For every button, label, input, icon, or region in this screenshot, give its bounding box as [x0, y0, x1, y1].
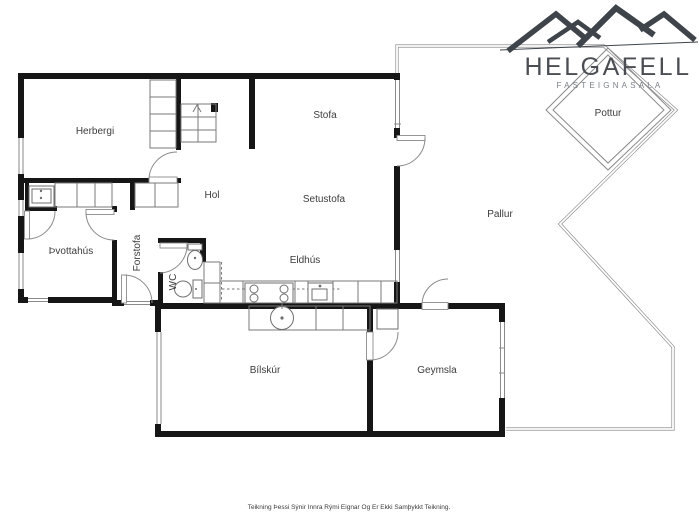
window-right-stofa — [394, 80, 401, 128]
floor-plan: Herbergi Stofa Hol Setustofa Þvottahús F… — [0, 0, 699, 524]
room-label-pottur: Pottur — [595, 108, 622, 119]
window-left-thvottahus — [19, 253, 23, 289]
room-label-forstofa: Forstofa — [132, 234, 143, 271]
entry-cabinets — [55, 183, 178, 207]
door-herbergi — [149, 152, 177, 183]
fixtures — [29, 80, 398, 330]
door-deck-geymsla — [422, 279, 448, 310]
window-left-small — [19, 200, 23, 216]
room-label-thvottahus: Þvottahús — [49, 246, 93, 257]
room-label-bilskur: Bílskúr — [250, 365, 281, 376]
room-label-eldhus: Eldhús — [290, 255, 321, 266]
door-front — [122, 275, 153, 303]
logo: HELGAFELL FASTEIGNASALA — [500, 8, 698, 90]
kitchen-sink-icon — [308, 283, 333, 303]
laundry-sink-icon — [29, 186, 54, 207]
room-label-wc: WC — [168, 274, 179, 291]
garage-counter — [249, 306, 370, 330]
wardrobe-icon — [150, 80, 176, 148]
window-bottom-thvottahus — [28, 299, 48, 302]
door-niche — [25, 211, 56, 239]
room-label-setustofa: Setustofa — [303, 194, 346, 205]
wc-sink-icon — [188, 244, 203, 270]
stairs-icon — [181, 104, 216, 142]
room-label-geymsla: Geymsla — [417, 365, 457, 376]
room-label-pallur: Pallur — [487, 209, 513, 220]
disclaimer-text: Teikning Þessi Sýnir Innra Rými Eignar O… — [248, 504, 451, 511]
room-label-stofa: Stofa — [313, 110, 337, 121]
window-geymsla — [499, 322, 505, 398]
room-label-herbergi: Herbergi — [76, 126, 114, 137]
window-left-herbergi — [19, 138, 23, 174]
room-label-hol: Hol — [204, 190, 219, 201]
door-wc — [160, 243, 187, 273]
room-labels: Herbergi Stofa Hol Setustofa Þvottahús F… — [49, 108, 622, 376]
garage-door — [157, 332, 161, 424]
water-heater-icon — [377, 309, 398, 329]
kitchen-counter — [204, 262, 397, 303]
door-thvottahus — [86, 210, 114, 241]
door-deck-stofa — [397, 136, 425, 167]
brand-name: HELGAFELL — [524, 53, 691, 81]
stove-icon — [245, 283, 293, 303]
floor-plan-page: Herbergi Stofa Hol Setustofa Þvottahús F… — [0, 0, 699, 524]
door-geymsla — [367, 332, 399, 360]
front-door-threshold — [124, 302, 150, 305]
brand-tagline: FASTEIGNASALA — [557, 81, 664, 90]
window-right-setustofa — [396, 250, 400, 282]
